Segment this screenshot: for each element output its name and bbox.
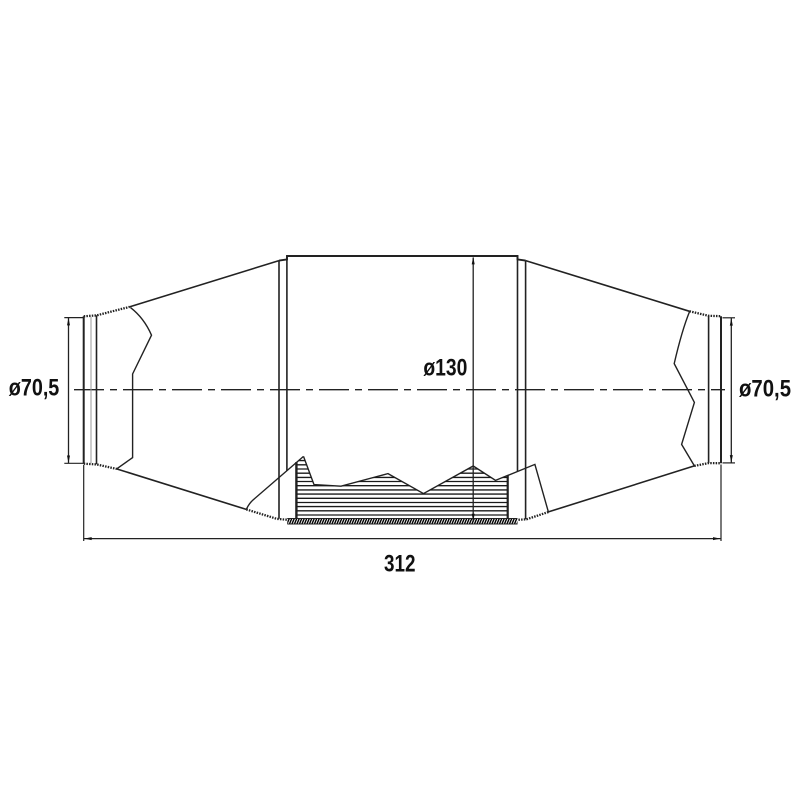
svg-text:312: 312 bbox=[384, 550, 416, 577]
svg-text:ø70,5: ø70,5 bbox=[739, 375, 791, 402]
svg-text:ø70,5: ø70,5 bbox=[9, 374, 60, 401]
svg-text:ø130: ø130 bbox=[423, 354, 467, 381]
